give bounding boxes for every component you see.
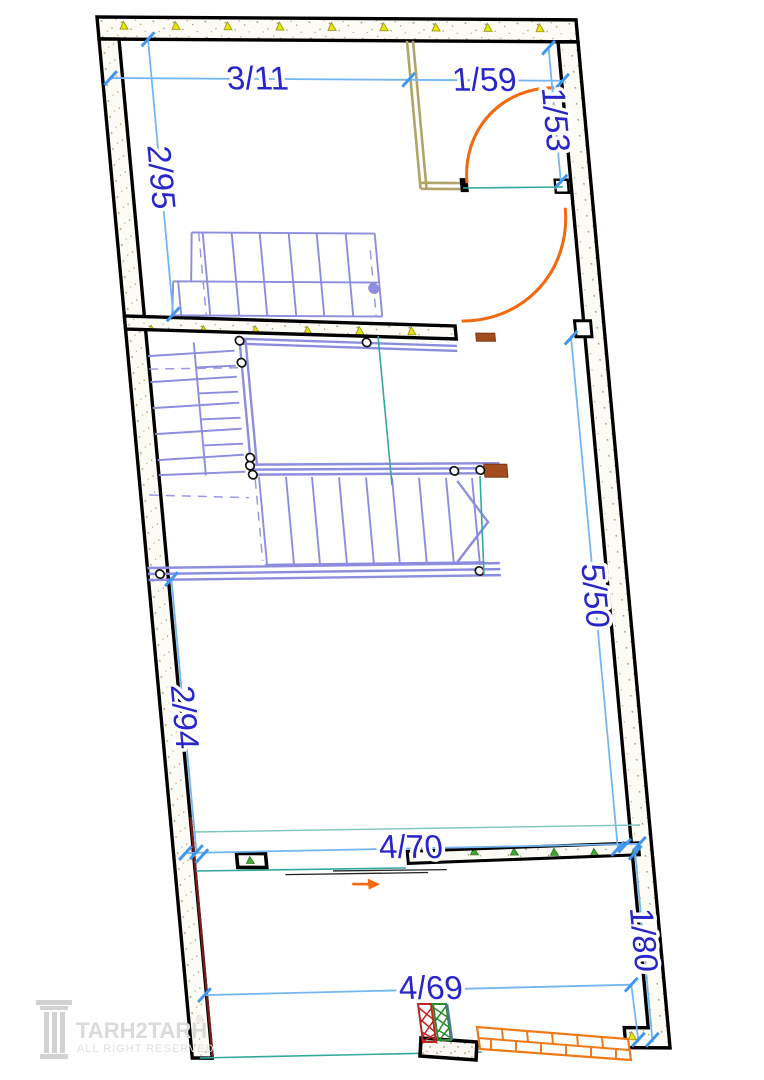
dim-label-right-height: 5/50 [573,563,616,627]
floor-plan-canvas: 3/11 1/59 1/53 2/95 5/50 2/94 4/70 1/80 … [0,0,764,1080]
dim-label-top-room-width: 1/59 [451,62,519,99]
column-icon [36,1000,72,1059]
logo-registered-mark: ® [196,1014,204,1025]
dim-label-left-lower-height: 2/94 [163,685,206,749]
logo-tagline: ALL RIGHT RESERVED [77,1043,215,1055]
floor-plan-page: 3/11 1/59 1/53 2/95 5/50 2/94 4/70 1/80 … [0,0,764,1080]
dim-label-top-left-width: 3/11 [225,60,290,97]
dim-label-right-lower-height: 1/80 [622,908,665,972]
stair-left-flight [147,342,252,476]
dim-label-left-upper-height: 2/95 [139,145,182,209]
logo-brand: TARH2TARH [76,1018,207,1043]
threshold-block [476,333,496,341]
stair-newel-dot [368,283,380,294]
stair-upper-flight [165,232,383,316]
rail-end-block [484,464,508,477]
stair-lower-flight [148,476,492,566]
stair-direction-arrow [449,481,492,563]
door-jamb-right-wall [575,321,592,337]
exterior-walls [97,17,671,1061]
dim-label-mid-lower-width: 4/70 [377,829,445,866]
guide-lines [194,187,640,1058]
interior-wall-upper [124,316,592,340]
direction-arrow [352,879,381,890]
brick-paving [477,1027,631,1060]
dim-label-bottom-width: 4/69 [397,970,465,1007]
column-block [236,853,266,867]
dim-label-top-room-depth: 1/53 [534,87,577,151]
door-swing-middle [451,207,575,322]
